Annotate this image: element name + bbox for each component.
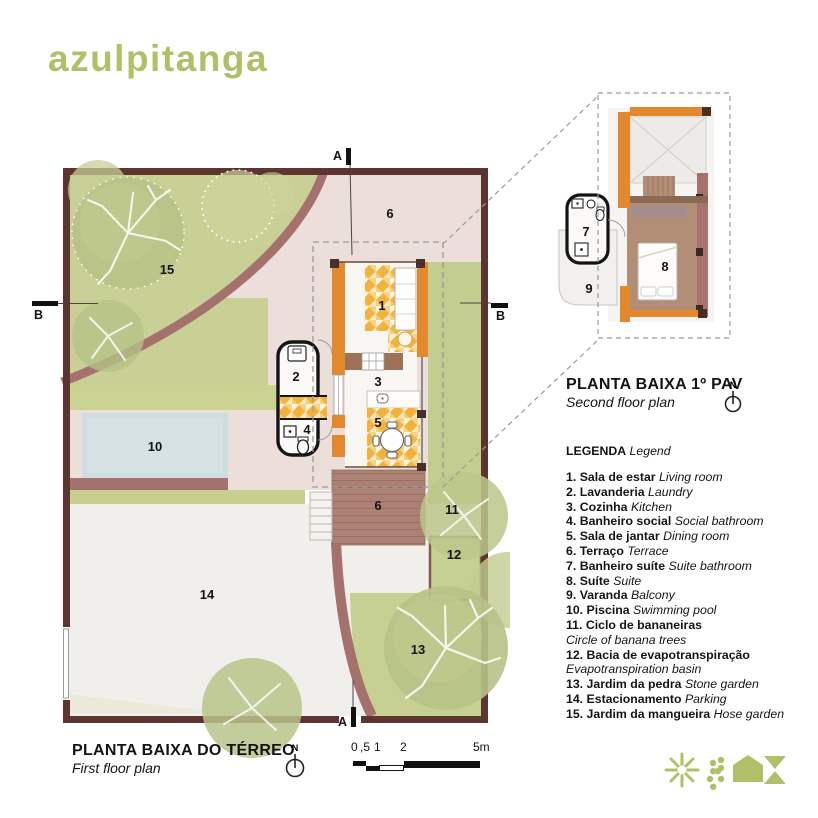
label-room-15: 15 [160,262,174,277]
first-floor-subtitle: First floor plan [72,760,295,776]
second-floor-title-block: PLANTA BAIXA 1º PAV Second floor plan [566,376,743,410]
legend-header: LEGENDA Legend [566,444,816,458]
washing-machine [288,346,306,361]
scale-label-05: ,5 [360,740,370,754]
scale-label-5m: 5m [473,740,490,754]
gate [64,629,69,698]
second-floor-subtitle: Second floor plan [566,394,743,410]
legend-item-1: 1. Sala de estar Living room [566,470,816,485]
label-room-6-deck: 6 [374,498,381,513]
legend-item-13: 13. Jardim da pedra Stone garden [566,677,816,692]
house-icon [733,755,763,782]
svg-text:N: N [730,380,737,390]
legend-panel: LEGENDA Legend 1. Sala de estar Living r… [566,444,816,722]
first-floor-plan-drawing: A A B B 15 6 1 2 3 4 5 6 10 11 12 13 14 [20,138,510,763]
kitchen-sink-counter [367,391,420,408]
first-floor-title: PLANTA BAIXA DO TÉRREO [72,742,295,760]
label-room-8: 8 [661,259,668,274]
label-room-9: 9 [585,281,592,296]
second-floor-title: PLANTA BAIXA 1º PAV [566,376,743,394]
second-floor-plan-drawing: 7 8 9 [545,80,775,350]
brand-icons [655,748,785,792]
label-room-11: 11 [445,502,459,517]
service-capsule [278,342,327,455]
sofa [395,268,416,330]
label-room-4: 4 [303,422,311,437]
legend-item-10: 10. Piscina Swimming pool [566,603,816,618]
first-floor-title-block: PLANTA BAIXA DO TÉRREO First floor plan [72,742,295,776]
poster-page: azulpitanga [0,0,818,818]
label-room-5: 5 [374,415,381,430]
east-garden-strip [428,262,481,504]
section-a-bottom: A [338,715,347,729]
toilet [298,440,309,454]
bed [638,243,677,300]
hourglass-icon [764,756,785,784]
upper-stairs [643,176,675,198]
legend-item-2: 2. Lavanderia Laundry [566,485,816,500]
legend-item-5: 5. Sala de jantar Dining room [566,529,816,544]
legend-item-8: 8. Suíte Suite [566,574,816,589]
scale-label-1: 1 [374,740,381,754]
scale-label-2: 2 [400,740,407,754]
label-room-6-terrace: 6 [386,206,393,221]
svg-text:N: N [292,743,299,753]
label-room-7: 7 [582,224,589,239]
wardrobe [632,206,687,217]
label-room-1: 1 [378,298,385,313]
legend-item-14: 14. Estacionamento Parking [566,692,816,707]
stove [362,353,384,370]
label-room-12: 12 [447,547,461,562]
legend-item-6: 6. Terraço Terrace [566,544,816,559]
section-b-left: B [34,308,43,322]
section-a-top: A [333,149,342,163]
basin [587,200,595,208]
azulpitanga-logo: azulpitanga [48,38,268,80]
legend-item-7: 7. Banheiro suíte Suite bathroom [566,559,816,574]
north-arrow-first-floor: N [280,740,310,782]
legend-item-9: 9. Varanda Balcony [566,588,816,603]
legend-item-11: 11. Ciclo de bananeiras Circle of banana… [566,618,816,648]
section-b-right: B [496,309,505,323]
scale-label-0: 0 [351,740,358,754]
label-room-3: 3 [374,374,381,389]
scale-bar: 0 ,5 1 2 5m [348,738,493,782]
label-room-14: 14 [200,587,215,602]
stairs [310,492,332,540]
legend-item-4: 4. Banheiro social Social bathroom [566,514,816,529]
legend-item-12: 12. Bacia de evapotranspiração Evapotran… [566,648,816,678]
north-arrow-second-floor: N [720,378,746,418]
label-room-13: 13 [411,642,425,657]
label-room-10: 10 [148,439,162,454]
label-room-2: 2 [292,369,299,384]
legend-item-3: 3. Cozinha Kitchen [566,500,816,515]
dotted-circle-icon [707,757,724,790]
upper-toilet [596,210,604,221]
legend-item-15: 15. Jardim da mangueira Hose garden [566,707,816,722]
side-table [398,332,412,346]
